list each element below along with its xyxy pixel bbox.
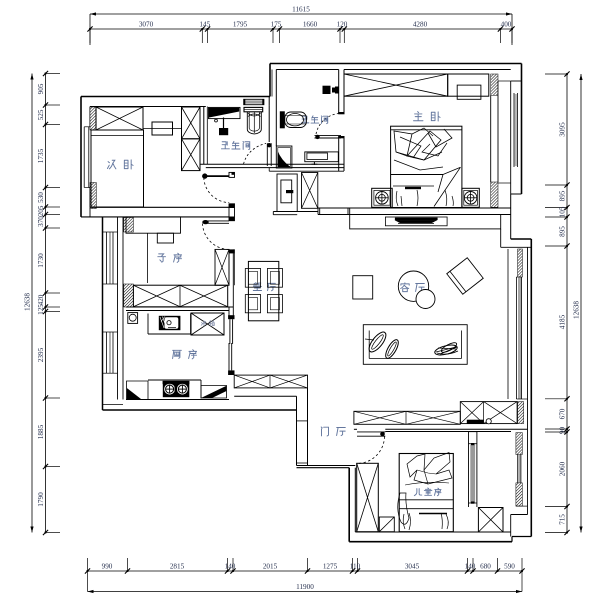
- svg-text:590: 590: [504, 563, 515, 571]
- svg-text:1790: 1790: [37, 492, 45, 507]
- svg-text:2060: 2060: [559, 461, 567, 476]
- svg-text:525: 525: [37, 109, 45, 120]
- svg-text:11900: 11900: [296, 583, 314, 591]
- svg-text:895: 895: [559, 226, 567, 237]
- svg-text:175: 175: [271, 21, 282, 29]
- svg-text:140: 140: [225, 563, 236, 571]
- svg-text:4185: 4185: [559, 314, 567, 329]
- svg-text:990: 990: [102, 563, 113, 571]
- svg-text:1735: 1735: [37, 148, 45, 163]
- svg-text:205: 205: [37, 205, 45, 216]
- svg-text:370: 370: [37, 216, 45, 227]
- svg-text:4280: 4280: [413, 21, 428, 29]
- svg-text:2815: 2815: [170, 563, 185, 571]
- svg-text:12638: 12638: [24, 293, 32, 311]
- svg-text:1660: 1660: [303, 21, 318, 29]
- svg-text:1795: 1795: [233, 21, 248, 29]
- svg-text:670: 670: [559, 408, 567, 419]
- svg-text:680: 680: [480, 563, 491, 571]
- svg-text:715: 715: [559, 514, 567, 525]
- svg-text:895: 895: [559, 190, 567, 201]
- svg-text:905: 905: [37, 83, 45, 94]
- svg-text:145: 145: [199, 21, 210, 29]
- svg-text:125: 125: [37, 304, 45, 315]
- svg-text:420: 420: [37, 294, 45, 305]
- svg-text:3095: 3095: [559, 122, 567, 137]
- svg-text:105: 105: [559, 206, 567, 217]
- svg-text:90: 90: [559, 427, 567, 435]
- svg-text:140: 140: [465, 563, 476, 571]
- svg-text:3070: 3070: [139, 21, 154, 29]
- svg-text:1885: 1885: [37, 424, 45, 439]
- svg-text:11615: 11615: [292, 6, 310, 14]
- svg-text:1730: 1730: [37, 253, 45, 268]
- svg-text:1275: 1275: [323, 563, 338, 571]
- svg-text:530: 530: [37, 192, 45, 203]
- svg-text:12638: 12638: [573, 301, 581, 319]
- svg-text:120: 120: [337, 21, 348, 29]
- svg-text:2015: 2015: [263, 563, 278, 571]
- svg-text:110: 110: [350, 563, 361, 571]
- svg-text:2395: 2395: [37, 347, 45, 362]
- svg-text:400: 400: [501, 21, 512, 29]
- svg-text:3045: 3045: [405, 563, 420, 571]
